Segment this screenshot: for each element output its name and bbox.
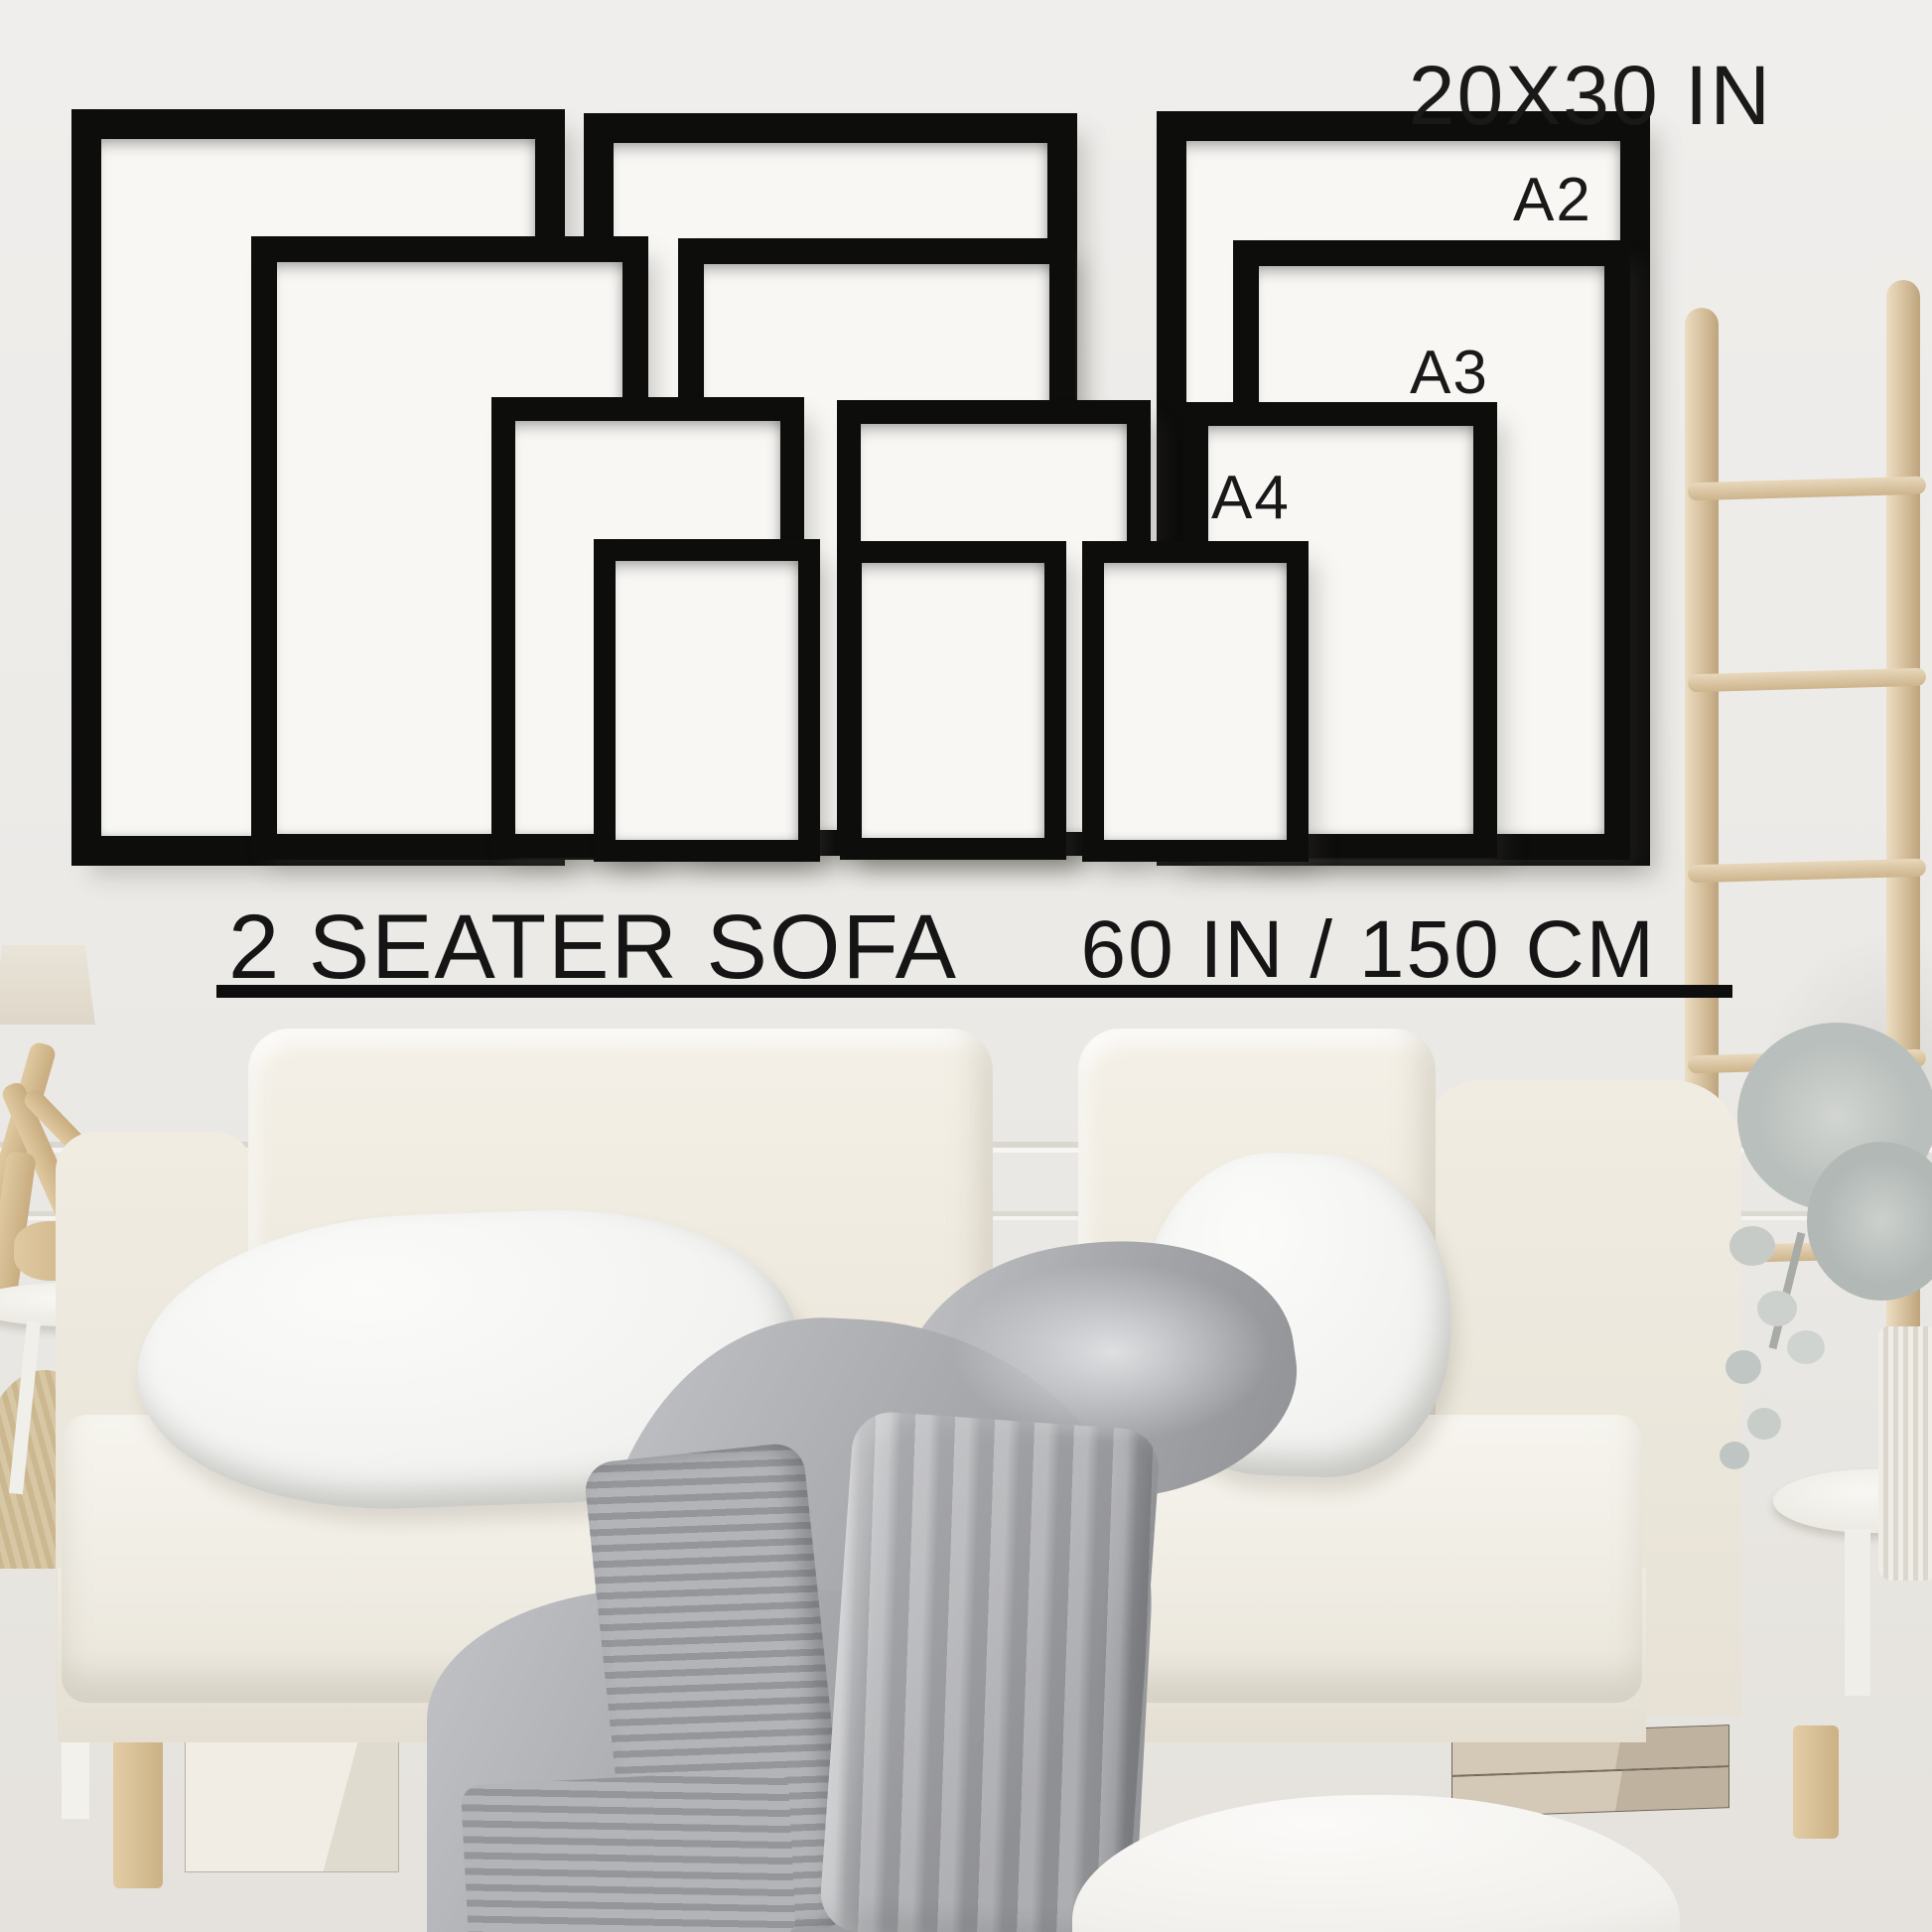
- picture-frame-a4-middle: [840, 541, 1066, 860]
- label-a2: A2: [1513, 165, 1592, 235]
- eucalyptus-leaf: [1747, 1408, 1781, 1440]
- sofa-width-label: 60 IN / 150 CM: [1081, 903, 1656, 997]
- label-20x30: 20X30 IN: [1409, 48, 1772, 144]
- eucalyptus-leaf: [1729, 1226, 1775, 1266]
- eucalyptus-leaf: [1720, 1442, 1749, 1469]
- eucalyptus-leaf: [1757, 1291, 1797, 1326]
- lampshade: [0, 945, 95, 1025]
- frame-size-guide-image: 20X30 IN A2 A3 A4 2 SEATER SOFA 60 IN / …: [0, 0, 1932, 1932]
- measurement-line: [216, 985, 1732, 998]
- picture-frame-a4-right: [1082, 541, 1309, 862]
- blanket-cable-panel: [818, 1410, 1162, 1932]
- blanket-highlight: [953, 1263, 1271, 1442]
- sofa-leg-wood: [1793, 1725, 1839, 1839]
- fluted-vase: [1878, 1326, 1932, 1581]
- eucalyptus-leaf: [1787, 1330, 1825, 1364]
- label-a4: A4: [1211, 463, 1291, 533]
- right-table-leg: [1845, 1529, 1870, 1696]
- storage-box-white: [185, 1731, 399, 1872]
- picture-frame-a4-left: [594, 539, 820, 862]
- eucalyptus-leaf: [1725, 1350, 1761, 1384]
- label-a3: A3: [1410, 338, 1489, 408]
- sofa-leg-wood: [113, 1729, 163, 1888]
- blanket-ribbed-panel-lower: [461, 1768, 796, 1932]
